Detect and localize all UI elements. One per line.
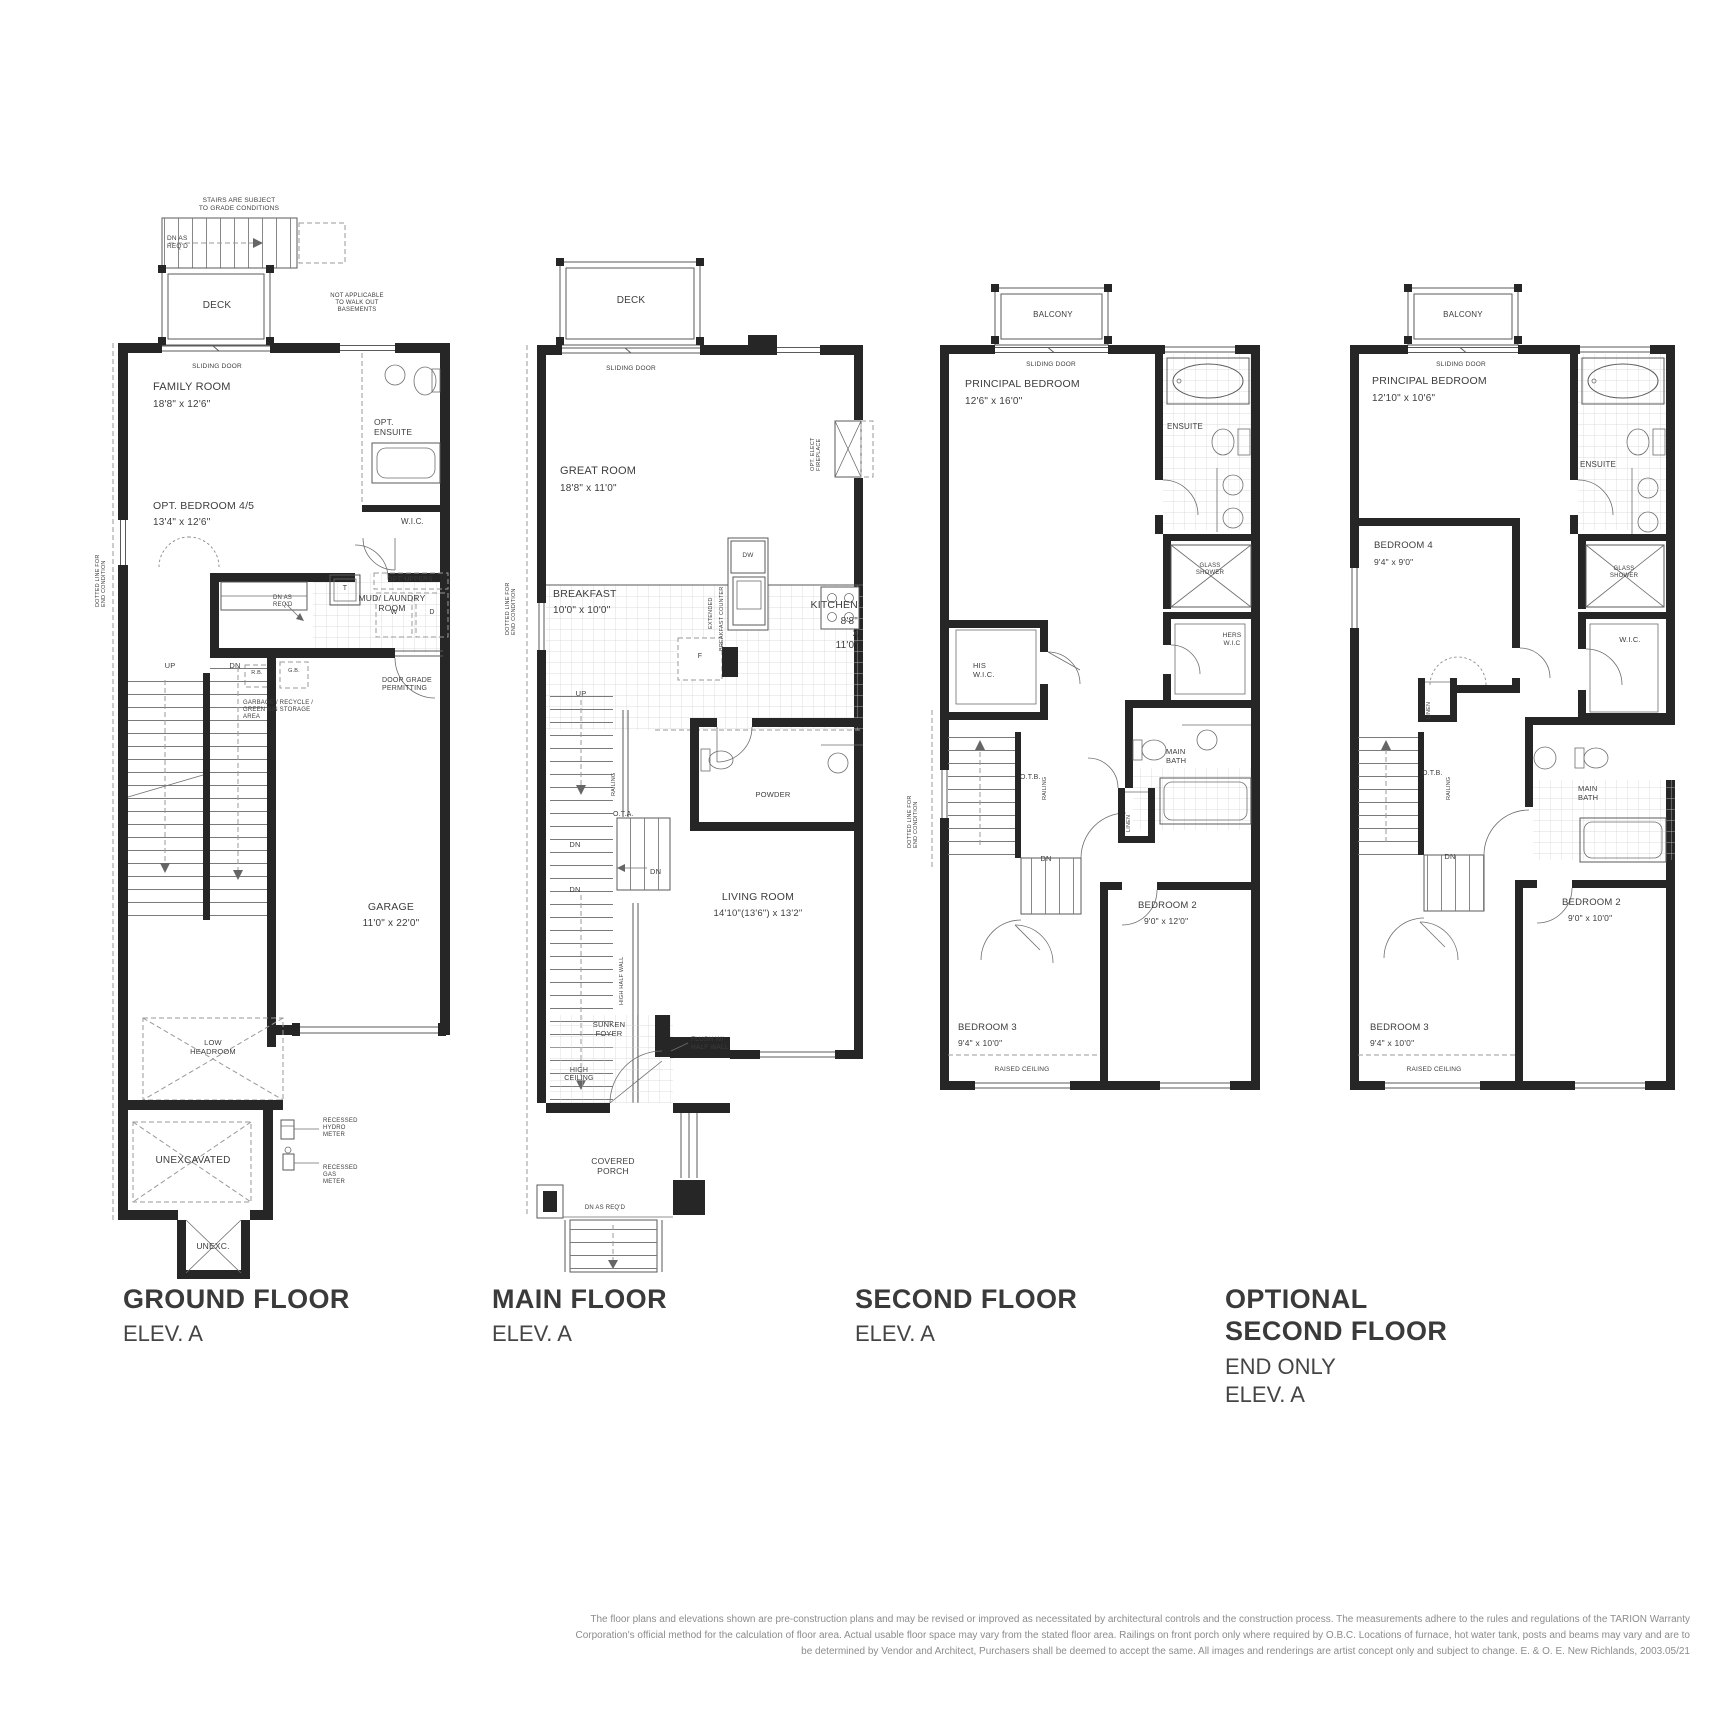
dims-bedroom-4: 9'4" x 9'0" <box>1374 557 1413 567</box>
ground-floor-labels: STAIRS ARE SUBJECT TO GRADE CONDITIONSDN… <box>95 175 460 1290</box>
note-dn: DN <box>229 662 240 671</box>
room-label-principal-bedroom: PRINCIPAL BEDROOM <box>1372 375 1487 387</box>
title-ground-floor: GROUND FLOOR ELEV. A <box>123 1283 350 1349</box>
room-label-family-room: FAMILY ROOM <box>153 381 231 394</box>
note-extended: EXTENDED <box>708 597 714 629</box>
note-dn: DN <box>1444 853 1455 862</box>
note-dn-2: DN <box>650 868 661 877</box>
room-label-balcony: BALCONY <box>1033 310 1073 319</box>
note-garbage-storage: GARBAGE / RECYCLE / GREEN BIN STORAGE AR… <box>243 700 313 721</box>
note-dn-3: DN <box>569 886 580 895</box>
note-dn-as-reqd-2: DN AS REQ'D <box>273 595 292 609</box>
room-label-wic: W.I.C. <box>1619 636 1641 645</box>
room-label-garage: GARAGE <box>368 901 414 913</box>
room-label-balcony: BALCONY <box>1443 310 1483 319</box>
room-label-hers-wic: HERS W.I.C <box>1223 632 1242 647</box>
room-label-wic: W.I.C. <box>401 517 424 526</box>
room-label-powder: POWDER <box>756 791 791 800</box>
note-stairs-grade: STAIRS ARE SUBJECT TO GRADE CONDITIONS <box>199 197 279 212</box>
room-label-unexc: UNEXC. <box>196 1241 229 1251</box>
title-sub: ELEV. A <box>855 1320 1077 1349</box>
note-dn-as-reqd: DN AS REQ'D <box>585 1205 625 1212</box>
dims-principal-bedroom: 12'10" x 10'6" <box>1372 393 1435 405</box>
dims-bedroom-3: 9'4" x 10'0" <box>1370 1038 1414 1048</box>
room-label-opt-ensuite: OPT. ENSUITE <box>374 417 412 437</box>
room-label-his-wic: HIS W.I.C. <box>973 662 995 680</box>
note-walkout: NOT APPLICABLE TO WALK OUT BASEMENTS <box>330 293 383 314</box>
room-label-bedroom-3: BEDROOM 3 <box>1370 1022 1429 1033</box>
note-gas-meter: RECESSED GAS METER <box>323 1165 358 1186</box>
dims-breakfast: 10'0" x 10'0" <box>553 605 610 617</box>
title-main: OPTIONAL SECOND FLOOR <box>1225 1283 1447 1348</box>
room-label-bedroom-2: BEDROOM 2 <box>1562 897 1621 908</box>
room-label-bedroom-2: BEDROOM 2 <box>1138 900 1197 911</box>
floor-plan-sheet: STAIRS ARE SUBJECT TO GRADE CONDITIONSDN… <box>0 0 1725 1725</box>
note-opt-uppers: OPT. UPPERS <box>387 576 432 584</box>
note-otb: O.T.B. <box>1020 774 1041 782</box>
note-breakfast-counter: BREAKFAST COUNTER <box>719 587 725 651</box>
note-dn: DN <box>1040 855 1051 864</box>
fixture-label-glass-shower: GLASS SHOWER <box>1610 566 1638 580</box>
note-sliding-door: SLIDING DOOR <box>1026 361 1076 369</box>
note-ota: O.T.A. <box>613 811 634 819</box>
note-low-headroom: LOW HEADROOM <box>190 1039 236 1057</box>
room-label-deck: DECK <box>617 295 646 307</box>
note-railing: RAILING <box>1446 777 1452 800</box>
room-label-main-bath: MAIN BATH <box>1166 748 1186 766</box>
room-label-breakfast: BREAKFAST <box>553 588 617 600</box>
title-main-floor: MAIN FLOOR ELEV. A <box>492 1283 667 1349</box>
note-railing: RAILING <box>1042 777 1048 800</box>
room-label-bedroom-3: BEDROOM 3 <box>958 1022 1017 1033</box>
note-sliding-door: SLIDING DOOR <box>192 363 242 371</box>
fixture-label-dw: DW <box>742 552 753 560</box>
fixture-label-glass-shower: GLASS SHOWER <box>1196 563 1224 577</box>
note-end-condition: DOTTED LINE FOR END CONDITION <box>907 795 920 848</box>
note-high-half-wall: HIGH HALF WALL <box>619 957 625 1005</box>
fixture-label-tub: T <box>343 585 347 593</box>
room-label-ensuite: ENSUITE <box>1580 460 1616 469</box>
note-up: UP <box>165 662 176 671</box>
disclaimer-line-3: be determined by Vendor and Architect, P… <box>410 1644 1690 1660</box>
room-label-main-bath: MAIN BATH <box>1578 785 1598 803</box>
plan-ground-floor: STAIRS ARE SUBJECT TO GRADE CONDITIONSDN… <box>95 175 460 1290</box>
dims-opt-bedroom: 13'4" x 12'6" <box>153 517 210 529</box>
room-label-principal-bedroom: PRINCIPAL BEDROOM <box>965 378 1080 390</box>
second-floor-labels: BALCONYSLIDING DOORPRINCIPAL BEDROOM12'6… <box>920 270 1275 1130</box>
note-dn-as-reqd: DN AS REQ'D <box>167 235 188 250</box>
note-sliding-door: SLIDING DOOR <box>606 365 656 373</box>
fixture-label-fridge: F <box>698 653 702 661</box>
room-label-sunken-foyer: SUNKEN FOYER <box>593 1021 625 1039</box>
dims-bedroom-3: 9'4" x 10'0" <box>958 1038 1002 1048</box>
room-label-unexcavated: UNEXCAVATED <box>156 1155 231 1167</box>
dims-family-room: 18'8" x 12'6" <box>153 399 210 411</box>
room-label-opt-bedroom: OPT. BEDROOM 4/5 <box>153 500 254 512</box>
room-label-linen: LINEN <box>1126 815 1132 832</box>
plan-second-floor: BALCONYSLIDING DOORPRINCIPAL BEDROOM12'6… <box>920 270 1275 1130</box>
title-sub: ELEV. A <box>123 1320 350 1349</box>
room-label-living-room: LIVING ROOM <box>722 891 794 903</box>
room-label-kitchen: KITCHEN <box>811 599 859 611</box>
note-up: UP <box>576 690 587 699</box>
note-high-ceiling: HIGH CEILING <box>564 1067 593 1084</box>
room-label-great-room: GREAT ROOM <box>560 465 636 478</box>
dims-bedroom-2: 9'0" x 10'0" <box>1568 913 1612 923</box>
fixture-label-gb: G.B. <box>288 668 300 674</box>
title-second-floor: SECOND FLOOR ELEV. A <box>855 1283 1077 1349</box>
note-fireplace: OPT. ELECT FIREPLACE <box>810 438 823 471</box>
room-label-ensuite: ENSUITE <box>1167 422 1203 431</box>
title-sub: ELEV. A <box>492 1320 667 1349</box>
optional-second-floor-labels: BALCONYSLIDING DOORPRINCIPAL BEDROOM12'1… <box>1330 270 1690 1130</box>
note-raised-ceiling: RAISED CEILING <box>995 1066 1050 1074</box>
note-hydro-meter: RECESSED HYDRO METER <box>323 1118 358 1139</box>
room-label-covered-porch: COVERED PORCH <box>591 1156 634 1176</box>
title-main: SECOND FLOOR <box>855 1283 1077 1315</box>
fixture-label-dryer: D <box>429 609 434 617</box>
dims-bedroom-2: 9'0" x 12'0" <box>1144 916 1188 926</box>
room-label-deck: DECK <box>203 300 232 312</box>
note-end-condition: DOTTED LINE FOR END CONDITION <box>95 554 108 607</box>
dims-garage: 11'0" x 22'0" <box>363 918 420 930</box>
note-raised-ceiling: RAISED CEILING <box>1407 1066 1462 1074</box>
dims-kitchen: 8'8" x 11'0" <box>836 616 858 651</box>
note-flush-half-wall: FLUSH W/ HALF WALL <box>691 1036 729 1051</box>
title-sub: END ONLY ELEV. A <box>1225 1353 1447 1410</box>
dims-living-room: 14'10"(13'6") x 13'2" <box>714 908 803 919</box>
disclaimer-line-1: The floor plans and elevations shown are… <box>410 1612 1690 1628</box>
note-otb: O.T.B. <box>1422 770 1443 778</box>
disclaimer: The floor plans and elevations shown are… <box>410 1612 1690 1660</box>
dims-great-room: 18'8" x 11'0" <box>560 483 617 495</box>
room-label-mud-laundry: MUD/ LAUNDRY ROOM <box>359 593 426 613</box>
title-main: MAIN FLOOR <box>492 1283 667 1315</box>
disclaimer-line-2: Corporation's official method for the ca… <box>410 1628 1690 1644</box>
note-railing: RAILING <box>611 773 617 796</box>
dims-principal-bedroom: 12'6" x 16'0" <box>965 396 1022 408</box>
plan-main-floor: DECKSLIDING DOORGREAT ROOM18'8" x 11'0"O… <box>505 255 875 1290</box>
note-dn-1: DN <box>569 841 580 850</box>
room-label-bedroom-4: BEDROOM 4 <box>1374 540 1433 551</box>
room-label-linen: LINEN <box>1426 702 1432 719</box>
note-sliding-door: SLIDING DOOR <box>1436 361 1486 369</box>
note-door-grade: DOOR GRADE PERMITTING <box>382 677 432 694</box>
fixture-label-rb: R.B. <box>251 670 263 676</box>
title-optional-second-floor: OPTIONAL SECOND FLOOR END ONLY ELEV. A <box>1225 1283 1447 1410</box>
main-floor-labels: DECKSLIDING DOORGREAT ROOM18'8" x 11'0"O… <box>505 255 875 1290</box>
title-main: GROUND FLOOR <box>123 1283 350 1315</box>
note-end-condition: DOTTED LINE FOR END CONDITION <box>505 582 518 635</box>
plan-optional-second-floor: BALCONYSLIDING DOORPRINCIPAL BEDROOM12'1… <box>1330 270 1690 1130</box>
